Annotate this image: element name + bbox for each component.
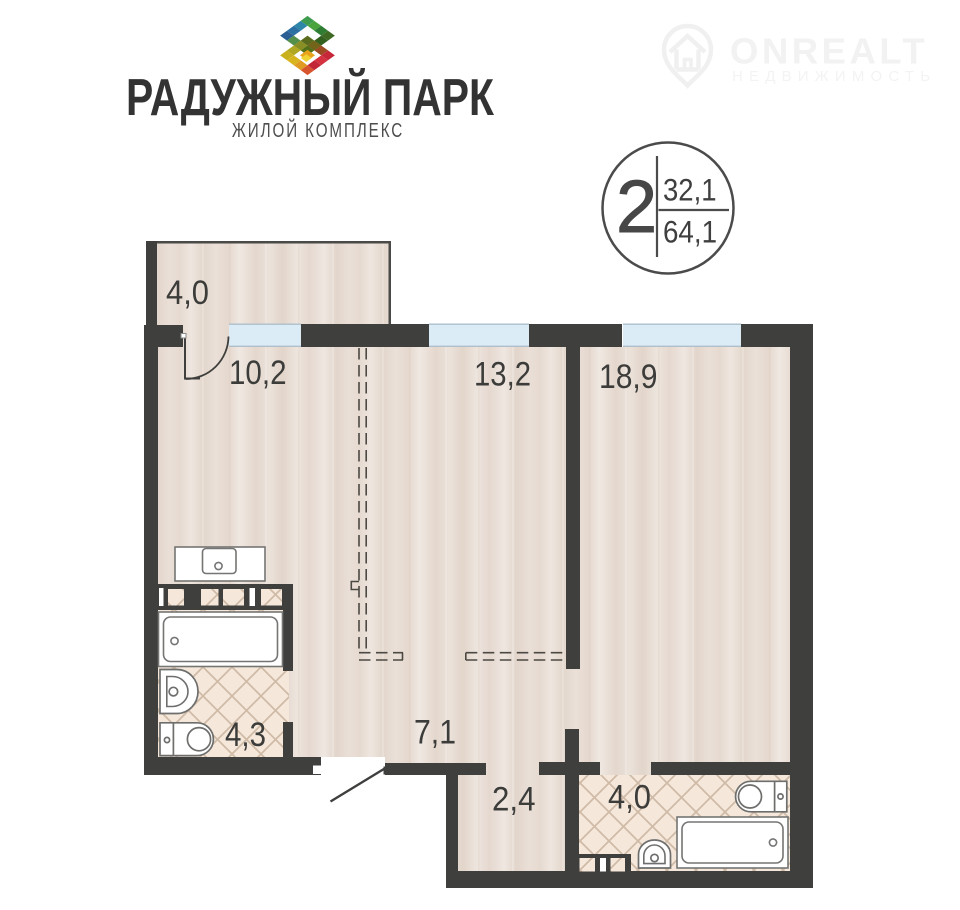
svg-text:ЖИЛОЙ КОМПЛЕКС: ЖИЛОЙ КОМПЛЕКС xyxy=(232,118,404,142)
svg-text:4,0: 4,0 xyxy=(166,274,209,312)
svg-text:32,1: 32,1 xyxy=(663,172,717,208)
svg-text:7,1: 7,1 xyxy=(414,714,456,752)
svg-text:НЕДВИЖИМОСТЬ: НЕДВИЖИМОСТЬ xyxy=(732,68,936,85)
svg-text:РАДУЖНЫЙ ПАРК: РАДУЖНЫЙ ПАРК xyxy=(126,68,494,126)
svg-text:2,4: 2,4 xyxy=(492,781,536,819)
svg-text:64,1: 64,1 xyxy=(663,214,717,250)
svg-text:4,3: 4,3 xyxy=(225,716,266,754)
svg-text:ONREALT: ONREALT xyxy=(730,31,928,72)
svg-text:2: 2 xyxy=(616,165,657,248)
svg-text:18,9: 18,9 xyxy=(599,358,658,396)
svg-text:4,0: 4,0 xyxy=(608,779,651,817)
svg-text:10,2: 10,2 xyxy=(229,354,287,392)
svg-text:13,2: 13,2 xyxy=(474,356,531,394)
